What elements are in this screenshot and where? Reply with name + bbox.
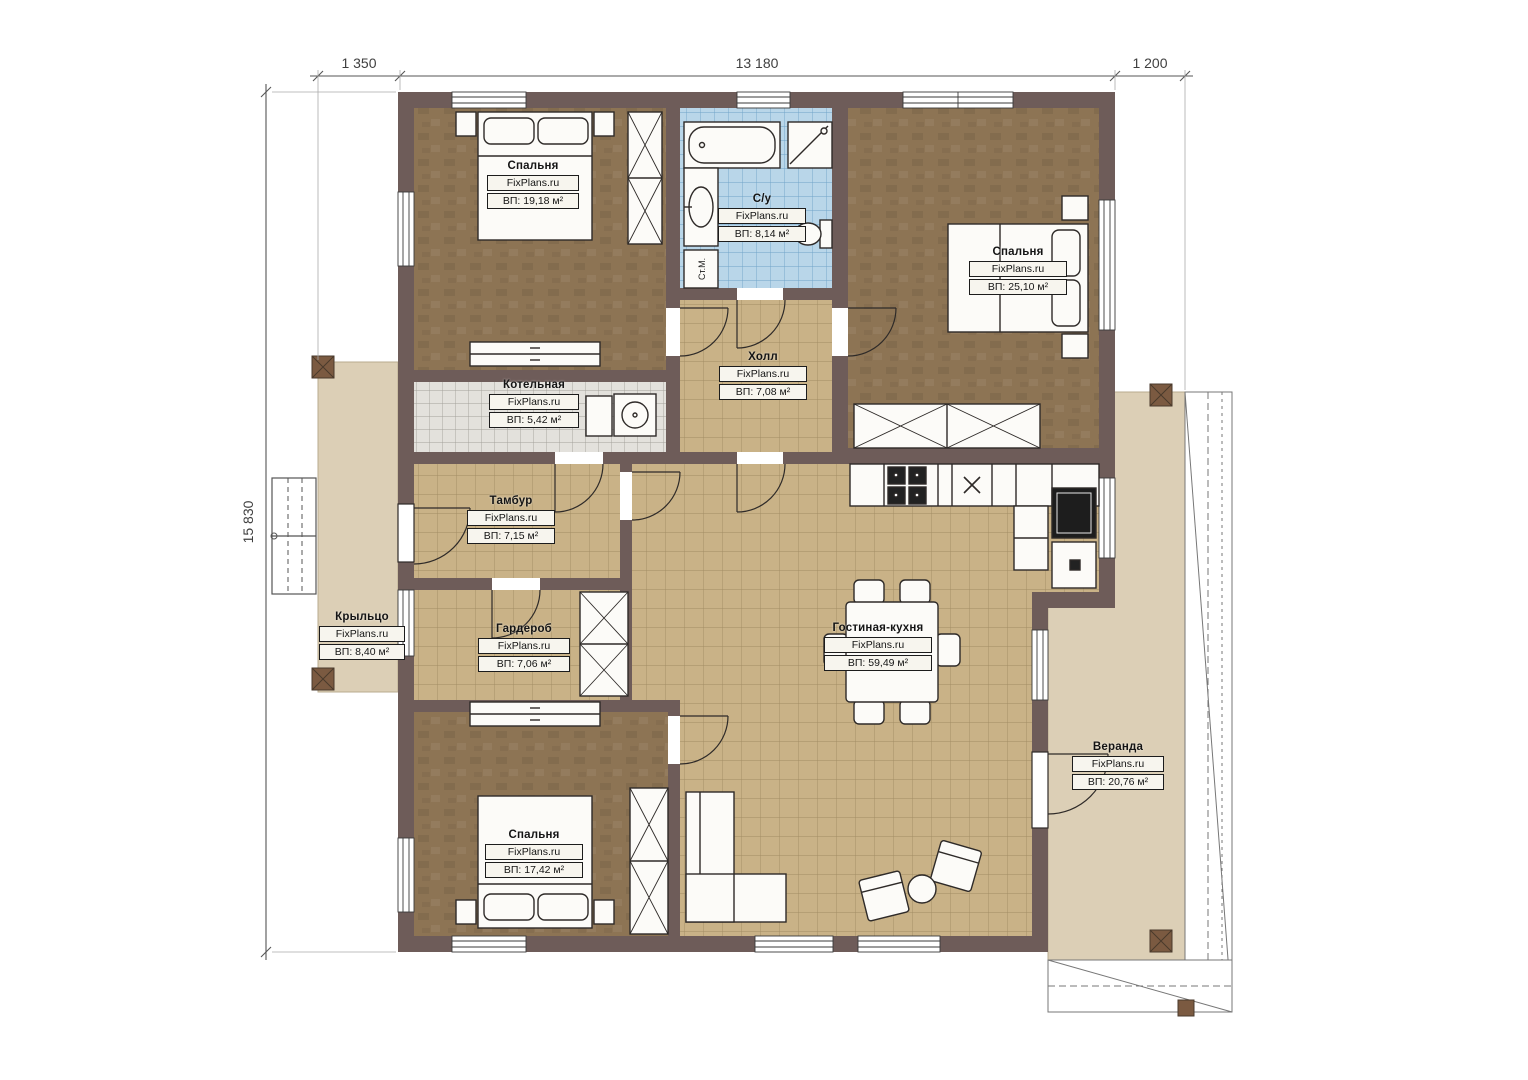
porch-post xyxy=(312,668,334,690)
room-brand: FixPlans.ru xyxy=(824,637,932,653)
porch-post xyxy=(312,356,334,378)
veranda-post xyxy=(1150,930,1172,952)
bathtub xyxy=(684,122,780,168)
room-name: Гостиная-кухня xyxy=(824,622,932,635)
room-label-bedroom-3: Спальня FixPlans.ru ВП: 17,42 м² xyxy=(485,829,583,878)
room-name: С/у xyxy=(718,193,806,206)
room-label-vestibule: Тамбур FixPlans.ru ВП: 7,15 м² xyxy=(467,495,555,544)
shower xyxy=(788,122,832,168)
room-area: ВП: 7,08 м² xyxy=(719,384,807,400)
room-area: ВП: 20,76 м² xyxy=(1072,774,1164,790)
room-label-hall: Холл FixPlans.ru ВП: 7,08 м² xyxy=(719,351,807,400)
window xyxy=(398,192,414,266)
floor-plan-page: Ст.М. 1 350 13 180 1 200 15 830 Спальня … xyxy=(0,0,1528,1080)
veranda-post xyxy=(1150,384,1172,406)
window xyxy=(755,936,833,952)
room-brand: FixPlans.ru xyxy=(719,366,807,382)
room-brand: FixPlans.ru xyxy=(478,638,570,654)
room-label-bedroom-1: Спальня FixPlans.ru ВП: 19,18 м² xyxy=(487,160,579,209)
room-brand: FixPlans.ru xyxy=(1072,756,1164,772)
room-brand: FixPlans.ru xyxy=(319,626,405,642)
kitchen-island xyxy=(1014,506,1048,570)
dim-side: 15 830 xyxy=(240,500,256,543)
room-label-bathroom: С/у FixPlans.ru ВП: 8,14 м² xyxy=(718,193,806,242)
room-label-porch: Крыльцо FixPlans.ru ВП: 8,40 м² xyxy=(319,611,405,660)
room-label-wardrobe: Гардероб FixPlans.ru ВП: 7,06 м² xyxy=(478,623,570,672)
room-name: Котельная xyxy=(489,379,579,392)
room-name: Крыльцо xyxy=(319,611,405,624)
oven xyxy=(1052,542,1096,588)
room-label-living-kitchen: Гостиная-кухня FixPlans.ru ВП: 59,49 м² xyxy=(824,622,932,671)
dresser xyxy=(470,342,600,366)
dim-top-right: 1 200 xyxy=(1132,55,1167,71)
room-area: ВП: 19,18 м² xyxy=(487,193,579,209)
window xyxy=(858,936,940,952)
armchair xyxy=(859,871,910,922)
room-label-bedroom-2: Спальня FixPlans.ru ВП: 25,10 м² xyxy=(969,246,1067,295)
floor-plan-drawing: Ст.М. 1 350 13 180 1 200 15 830 xyxy=(0,0,1528,1080)
room-area: ВП: 17,42 м² xyxy=(485,862,583,878)
dim-top-left: 1 350 xyxy=(341,55,376,71)
room-area: ВП: 5,42 м² xyxy=(489,412,579,428)
room-name: Холл xyxy=(719,351,807,364)
porch-steps xyxy=(271,478,316,594)
room-label-boiler-room: Котельная FixPlans.ru ВП: 5,42 м² xyxy=(489,379,579,428)
wardrobe-closet xyxy=(854,404,1040,448)
room-name: Спальня xyxy=(969,246,1067,259)
window xyxy=(737,92,790,108)
window xyxy=(452,92,526,108)
room-name: Спальня xyxy=(485,829,583,842)
room-name: Гардероб xyxy=(478,623,570,636)
room-area: ВП: 8,40 м² xyxy=(319,644,405,660)
wardrobe-closet xyxy=(630,788,668,934)
wardrobe-closet xyxy=(628,112,662,244)
veranda-post xyxy=(1178,1000,1194,1016)
room-area: ВП: 8,14 м² xyxy=(718,226,806,242)
room-name: Веранда xyxy=(1072,741,1164,754)
window xyxy=(1099,200,1115,330)
room-brand: FixPlans.ru xyxy=(718,208,806,224)
room-label-veranda: Веранда FixPlans.ru ВП: 20,76 м² xyxy=(1072,741,1164,790)
window xyxy=(1032,630,1048,700)
coffee-table xyxy=(908,875,936,903)
window xyxy=(452,936,526,952)
room-brand: FixPlans.ru xyxy=(489,394,579,410)
room-area: ВП: 59,49 м² xyxy=(824,655,932,671)
room-area: ВП: 7,15 м² xyxy=(467,528,555,544)
sink xyxy=(684,168,718,246)
window xyxy=(1099,478,1115,558)
room-area: ВП: 7,06 м² xyxy=(478,656,570,672)
shelving xyxy=(580,592,628,696)
room-area: ВП: 25,10 м² xyxy=(969,279,1067,295)
room-brand: FixPlans.ru xyxy=(487,175,579,191)
boiler-unit xyxy=(586,394,656,436)
room-brand: FixPlans.ru xyxy=(485,844,583,860)
window xyxy=(903,92,1013,108)
fridge xyxy=(1052,488,1096,538)
room-brand: FixPlans.ru xyxy=(467,510,555,526)
dresser xyxy=(470,702,600,726)
dim-top-span: 13 180 xyxy=(736,55,779,71)
room-name: Тамбур xyxy=(467,495,555,508)
window xyxy=(398,838,414,912)
room-name: Спальня xyxy=(487,160,579,173)
room-brand: FixPlans.ru xyxy=(969,261,1067,277)
washing-machine-caption: Ст.М. xyxy=(697,258,707,280)
